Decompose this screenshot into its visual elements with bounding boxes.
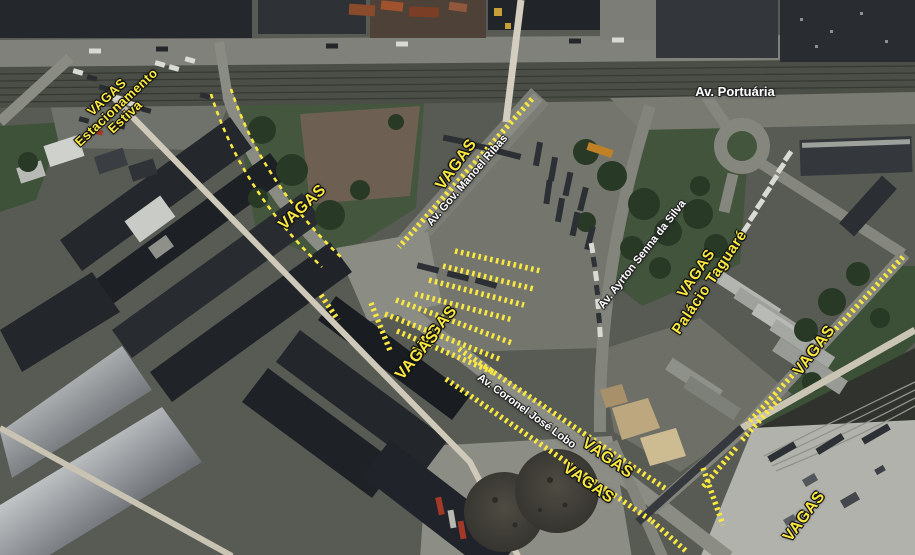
vagas-label: VAGAS xyxy=(393,328,443,383)
vagas-label: VAGAS xyxy=(791,323,839,380)
street-label: Av. Ayrton Senna da Silva xyxy=(597,199,689,312)
vagas-label: VAGAS xyxy=(559,460,616,507)
vagas-label: VAGAS xyxy=(411,303,461,358)
vagas-label: VAGAS xyxy=(781,489,829,546)
street-label: Av. Portuária xyxy=(695,85,774,99)
vagas-label: VAGAS Estacionamento Estiva xyxy=(63,56,169,159)
vagas-label: VAGAS xyxy=(578,435,635,482)
vagas-label: VAGAS xyxy=(433,137,481,194)
satellite-map: VAGAS Estacionamento EstivaVAGASVAGASVAG… xyxy=(0,0,915,555)
street-label: Av. Gov. Manoel Ribas xyxy=(425,133,510,229)
vagas-label: VAGAS Palácio Taguaré xyxy=(656,219,750,337)
vagas-label: VAGAS xyxy=(276,182,330,234)
street-label: Av. Coronel José Lobo xyxy=(475,372,578,451)
annotation-labels: VAGAS Estacionamento EstivaVAGASVAGASVAG… xyxy=(0,0,915,555)
